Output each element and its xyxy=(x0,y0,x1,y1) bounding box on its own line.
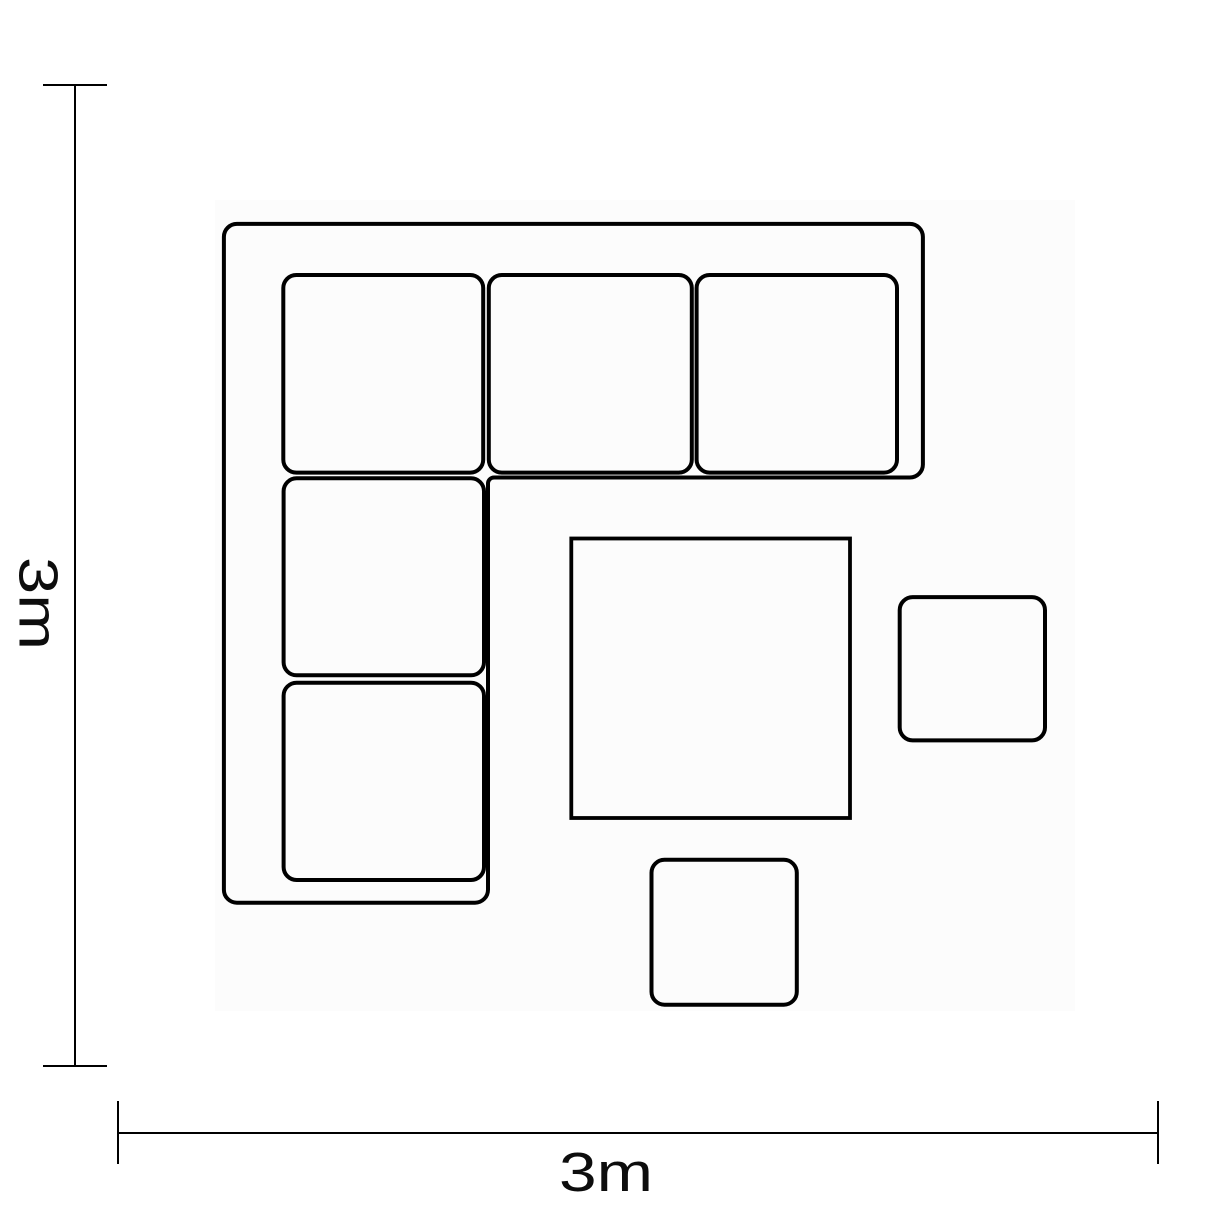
svg-text:3m: 3m xyxy=(559,1141,653,1203)
svg-text:3m: 3m xyxy=(8,557,70,650)
